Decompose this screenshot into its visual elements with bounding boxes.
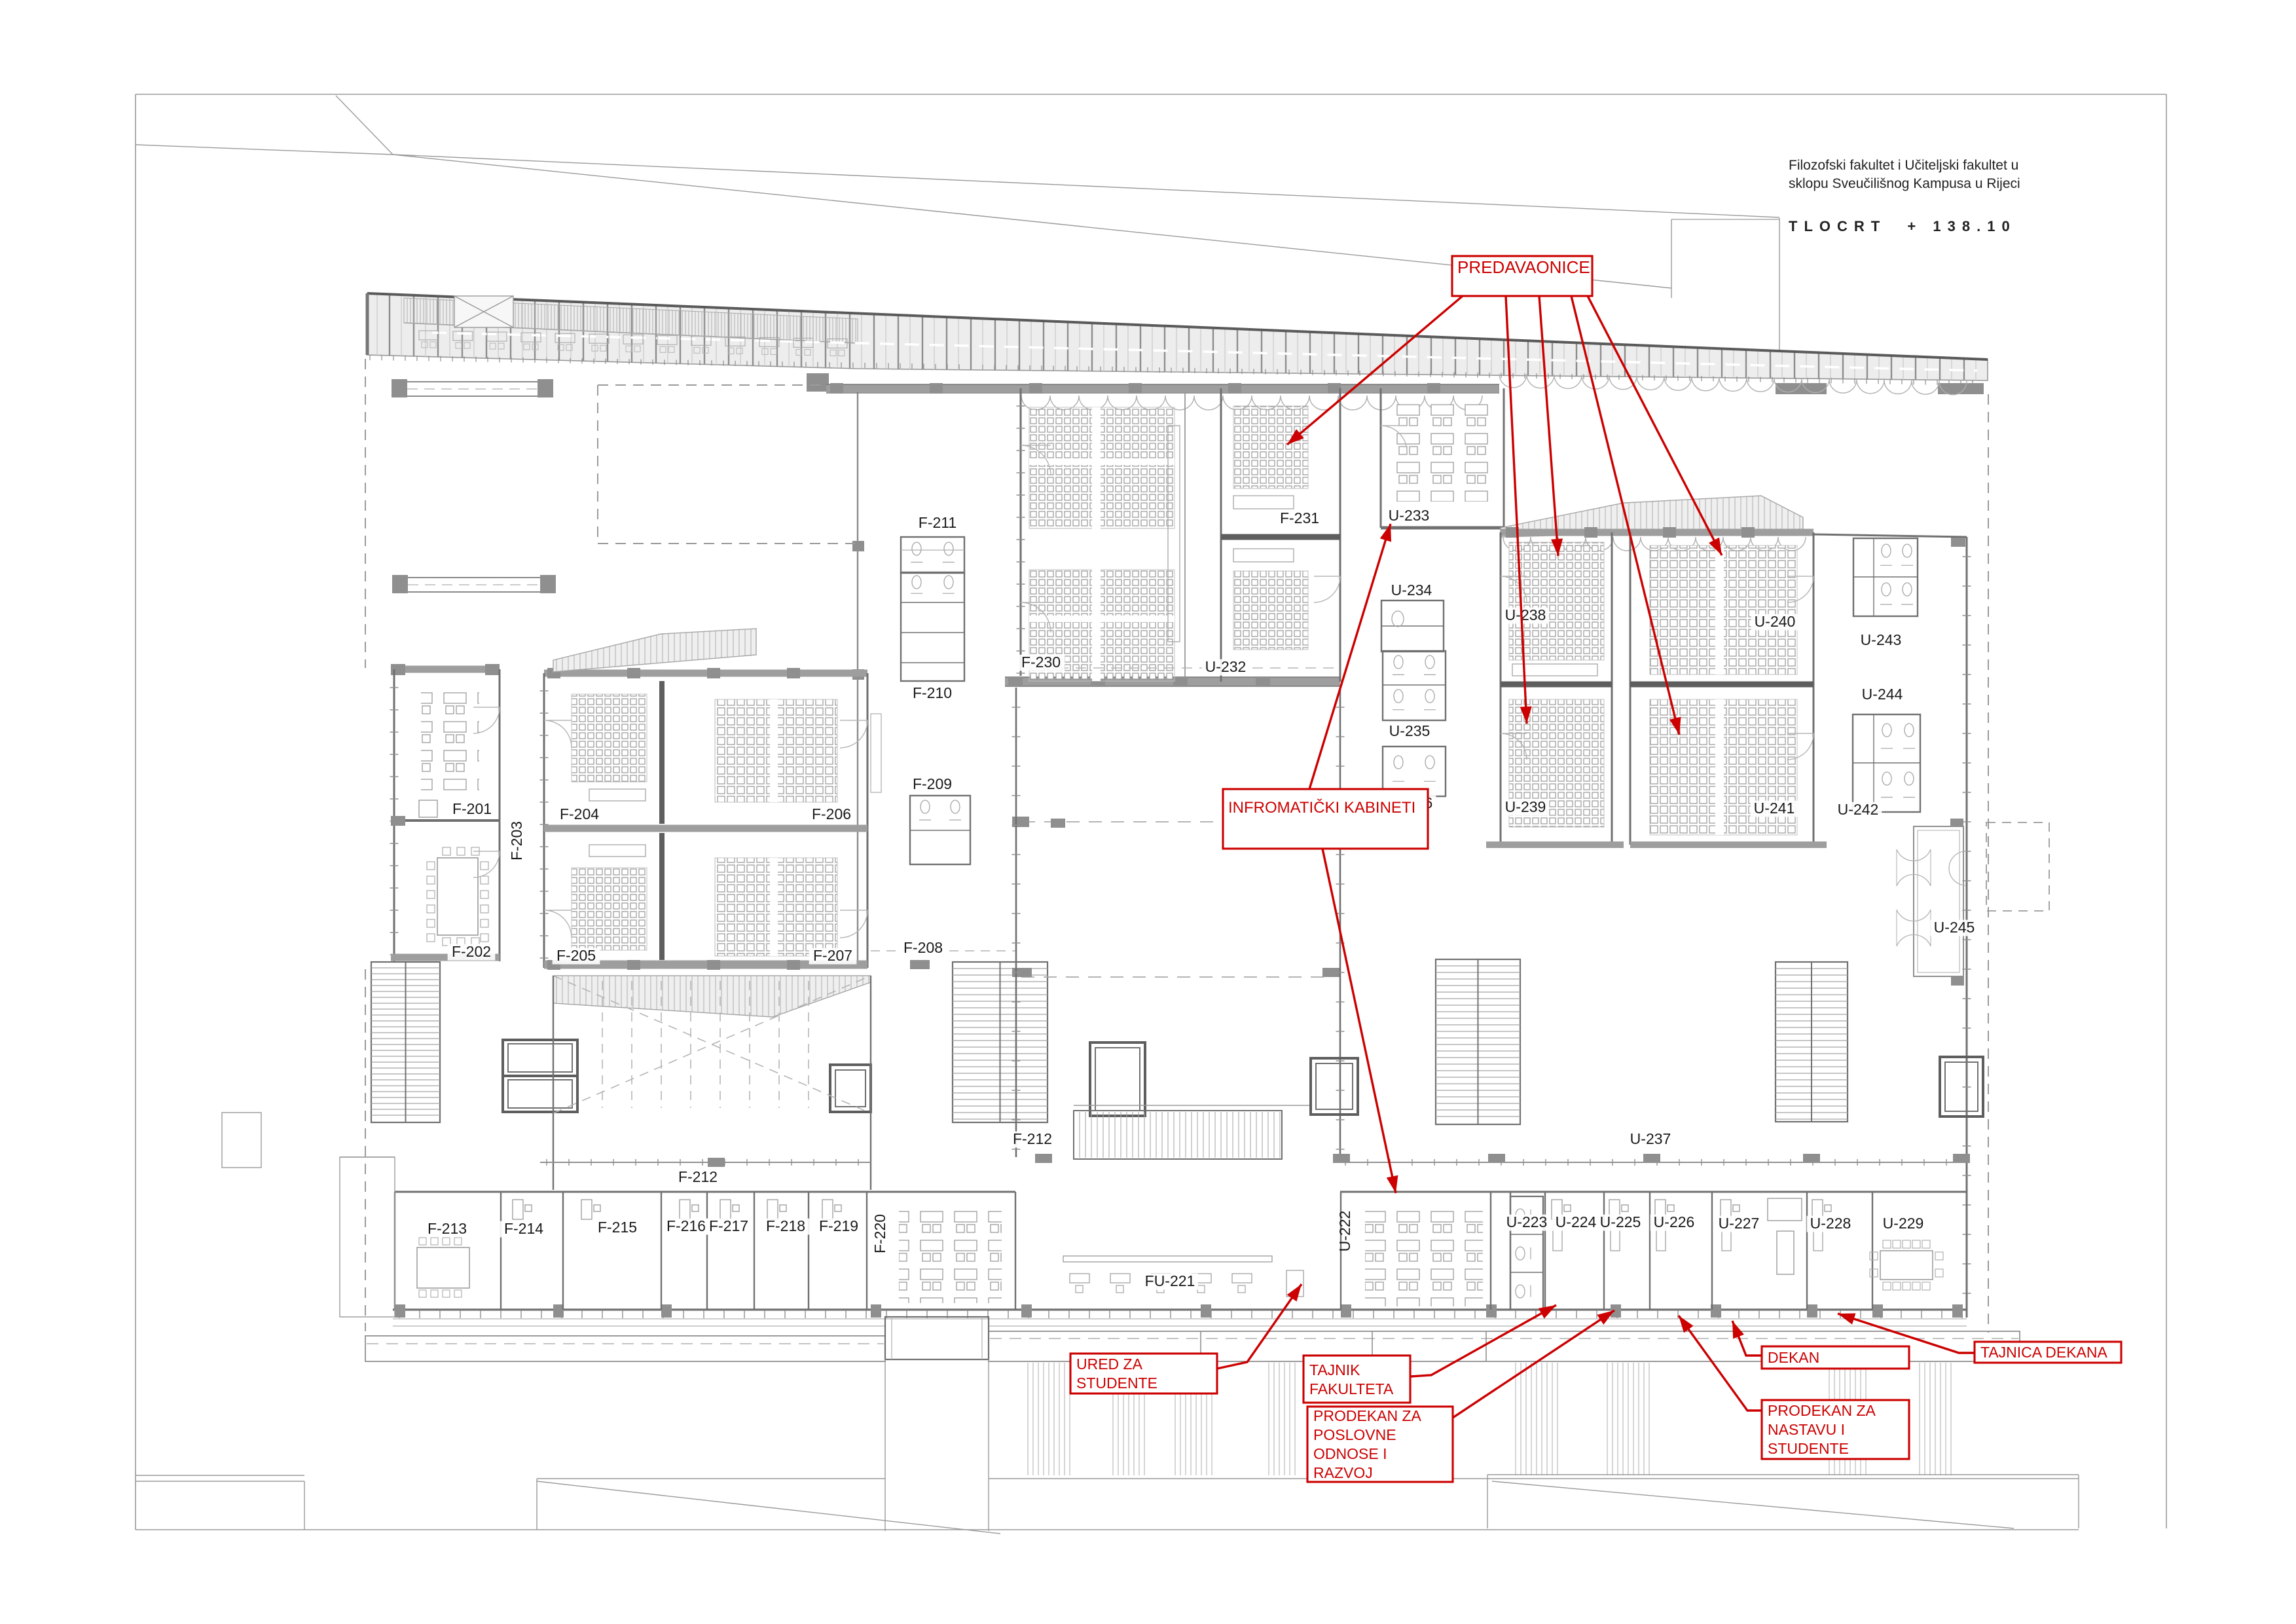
svg-text:F-202: F-202 [452,943,491,960]
svg-text:F-216: F-216 [666,1217,706,1234]
svg-text:TAJNICA DEKANA: TAJNICA DEKANA [1980,1344,2107,1361]
svg-text:U-229: U-229 [1883,1215,1924,1232]
svg-text:F-201: F-201 [452,800,492,817]
svg-text:PREDAVAONICE: PREDAVAONICE [1457,257,1590,277]
svg-text:TAJNIK: TAJNIK [1309,1361,1360,1378]
svg-text:U-233: U-233 [1389,507,1430,524]
svg-text:U-228: U-228 [1810,1215,1851,1232]
svg-text:U-225: U-225 [1600,1213,1641,1230]
svg-text:Filozofski fakultet i Učiteljs: Filozofski fakultet i Učiteljski fakulte… [1789,158,2018,173]
svg-text:U-223: U-223 [1506,1213,1548,1230]
svg-text:F-230: F-230 [1021,654,1061,671]
svg-text:TLOCRT + 138.10: TLOCRT + 138.10 [1789,218,2016,234]
svg-text:U-245: U-245 [1934,919,1975,936]
svg-text:U-227: U-227 [1719,1215,1760,1232]
svg-text:NASTAVU I: NASTAVU I [1768,1421,1845,1438]
svg-text:F-205: F-205 [556,947,596,964]
svg-text:F-203: F-203 [508,821,525,860]
svg-text:F-219: F-219 [819,1217,858,1234]
svg-text:F-211: F-211 [919,514,957,531]
svg-text:U-243: U-243 [1861,631,1902,648]
svg-text:PRODEKAN ZA: PRODEKAN ZA [1313,1407,1422,1424]
svg-text:F-209: F-209 [913,775,952,792]
svg-text:U-241: U-241 [1754,800,1795,817]
svg-text:INFROMATIČKI KABINETI: INFROMATIČKI KABINETI [1228,798,1415,817]
svg-text:F-217: F-217 [709,1217,748,1234]
svg-text:POSLOVNE: POSLOVNE [1313,1426,1396,1443]
svg-text:sklopu Sveučilišnog Kampusa u: sklopu Sveučilišnog Kampusa u Rijeci [1789,176,2020,191]
svg-text:U-235: U-235 [1389,722,1430,739]
svg-text:F-215: F-215 [598,1219,637,1236]
svg-text:F-218: F-218 [766,1217,805,1234]
svg-text:F-208: F-208 [903,939,943,956]
svg-text:U-242: U-242 [1838,801,1879,818]
svg-text:FAKULTETA: FAKULTETA [1309,1380,1394,1397]
svg-text:U-240: U-240 [1755,613,1796,630]
svg-text:F-204: F-204 [560,805,599,822]
svg-text:U-232: U-232 [1205,658,1247,675]
svg-text:RAZVOJ: RAZVOJ [1313,1464,1373,1481]
svg-text:U-238: U-238 [1505,606,1546,623]
svg-text:PRODEKAN ZA: PRODEKAN ZA [1768,1402,1876,1419]
svg-text:F-207: F-207 [813,947,852,964]
svg-text:F-220: F-220 [871,1214,888,1253]
svg-text:URED ZA: URED ZA [1076,1356,1143,1373]
svg-text:F-214: F-214 [504,1220,543,1237]
svg-text:F-212: F-212 [1013,1130,1052,1147]
svg-text:U-224: U-224 [1556,1213,1597,1230]
svg-text:U-226: U-226 [1654,1213,1695,1230]
svg-text:F-213: F-213 [428,1220,467,1237]
svg-text:STUDENTE: STUDENTE [1768,1440,1849,1457]
svg-text:F-212: F-212 [678,1168,718,1185]
svg-text:U-222: U-222 [1336,1211,1353,1252]
svg-text:U-239: U-239 [1505,798,1546,815]
svg-text:STUDENTE: STUDENTE [1076,1375,1157,1392]
svg-text:DEKAN: DEKAN [1768,1349,1819,1366]
svg-text:U-234: U-234 [1391,581,1432,599]
svg-text:FU-221: FU-221 [1145,1272,1195,1289]
svg-text:F-231: F-231 [1280,509,1319,526]
svg-text:ODNOSE I: ODNOSE I [1313,1445,1387,1462]
svg-text:F-210: F-210 [913,684,952,701]
svg-text:U-237: U-237 [1630,1130,1671,1147]
svg-text:F-206: F-206 [812,805,851,822]
svg-text:U-244: U-244 [1862,686,1903,703]
